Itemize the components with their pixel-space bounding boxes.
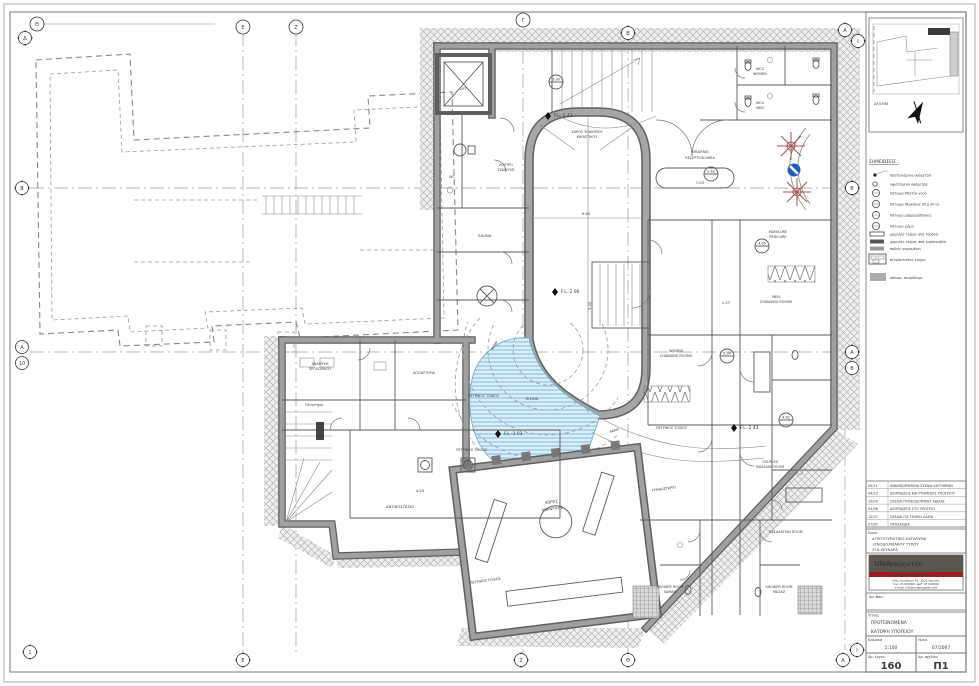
logo-ghost: UNA bbox=[874, 560, 892, 568]
logo-address: e-mail: info@unaprogetto.com bbox=[895, 586, 938, 590]
room-label: COUPLES bbox=[762, 460, 778, 464]
room-label: ΑΠΟΔΥΤΗΡΙΑ bbox=[413, 371, 436, 375]
plant-motif bbox=[777, 132, 805, 160]
date-value: 07/2007 bbox=[932, 645, 950, 651]
dimension: 7.03 bbox=[696, 180, 705, 185]
revision-desc: ΔΙΟΡΘΩΣΕΙΣ ΣΤΟ ΥΠΟΓΕΙΟ bbox=[890, 507, 935, 511]
grid-bubble: Ζ bbox=[294, 25, 298, 31]
room-label: WC bbox=[449, 175, 455, 179]
job-number: 160 bbox=[881, 661, 902, 672]
logo-brand: PROGETTO bbox=[890, 563, 923, 569]
room-label: RELAXATION ROOM bbox=[769, 530, 802, 534]
revision-desc: ΠΡΟΣΧΕΔΙΑ bbox=[890, 523, 910, 527]
drawing-number: Π1 bbox=[933, 661, 948, 672]
grid-bubble: Β bbox=[850, 366, 854, 372]
room-label: ΠΡΟΣΩΠΙΚΟΥ bbox=[309, 367, 332, 371]
legend-item: ποδιές γεμισμένες bbox=[890, 247, 921, 251]
shower-floor bbox=[798, 586, 822, 614]
room-label: RECEPTION AREA bbox=[685, 156, 715, 160]
lockers-row bbox=[768, 266, 815, 282]
room-label: WOMEN bbox=[753, 72, 767, 76]
level-label: F.L.-3.03 bbox=[504, 431, 523, 437]
drawing-sheet: ΧΩΡΟΣ ΑΝΑΨΥΧΗΣ bbox=[0, 0, 979, 686]
grid-bubble: Α bbox=[841, 658, 845, 664]
drawing-number-label: Αρ. σχεδίου bbox=[918, 655, 938, 659]
legend-title: ΣΗΜΕΙΩΣΕΙΣ : bbox=[869, 159, 899, 165]
room-label: ΚΑΘΙΣΤΙΚΟΥ bbox=[577, 135, 598, 139]
room-label: ΑΝΑΨΥΧΗ bbox=[312, 362, 329, 366]
revision-date: 04/10 bbox=[868, 492, 878, 496]
tag-value: 4.82 bbox=[782, 416, 790, 420]
drawing-title: ΚΑΤΟΨΗ ΥΠΟΓΕΙΟΥ bbox=[871, 629, 914, 635]
grid-bubble: Β bbox=[850, 186, 854, 192]
room-label: Πλυντήριο bbox=[305, 403, 323, 407]
legend-item: προτεινόμενα υψόμετρα bbox=[890, 174, 932, 178]
room-label: SAUNA bbox=[478, 233, 492, 238]
dimension: 4.23 bbox=[416, 488, 425, 493]
scale-value: 1:100 bbox=[885, 645, 898, 651]
recreation-room: ΧΩΡΟΣ ΑΝΑΨΥΧΗΣ bbox=[452, 438, 658, 636]
room-label: CHANGING ROOMS bbox=[660, 354, 692, 358]
revision-desc: ΔΙΟΡΘΩΣΕΙΣ ΚΑΙ ΡΥΘΜΙΣΕΙΣ ΥΠΟΓΕΙΟΥ bbox=[890, 492, 956, 496]
grid-bubble: Δ bbox=[23, 36, 27, 42]
room-label: ΧΩΡΟΣ ΥΠΑΙΘΡΙΟΥ bbox=[571, 130, 603, 134]
grid-bubble: Β bbox=[626, 31, 630, 37]
revision-date: 05/11 bbox=[868, 484, 878, 488]
file-label: Αρ. Φακ. bbox=[869, 595, 884, 599]
logo-tagline: ΑΡΧΙΤΕΚΤΟΝΙΚΕΣ ΜΕΛΕΤΕΣ bbox=[892, 573, 930, 577]
grid-bubble: Α bbox=[843, 28, 847, 34]
room-label: ΛΟΥΤΡΟ bbox=[499, 163, 513, 167]
dimension: 1.27 bbox=[722, 300, 731, 305]
grid-bubble: 10 bbox=[19, 361, 25, 367]
revision-date: 07/07 bbox=[868, 523, 878, 527]
project-title: ΞΕΝΟΔΟΧΕΙΑΚΟΥ ΤΥΠΟΥ bbox=[872, 542, 919, 547]
legend-item: υφιστάμενα υψόμετρα bbox=[890, 183, 928, 187]
tag-value: 4.65 bbox=[758, 242, 766, 246]
room-label: MEN bbox=[772, 295, 780, 299]
legend-item: πετρόκτιστος τοίχος bbox=[890, 258, 926, 262]
room-label: MANICURE bbox=[769, 230, 787, 234]
room-label: SHOWER ROOM bbox=[766, 585, 793, 589]
dimension: 9.80 bbox=[582, 211, 591, 216]
note-label: ΠΕΤΡΙΝΟΣ ΤΟΙΧΟΣ bbox=[656, 426, 687, 430]
grid-bubble: Β bbox=[20, 186, 24, 192]
revision-desc: ΑΝΑΘΕΩΡΗΜΕΝΑ ΣΧΕΔΙΑ ΚΑΤΟΨΕΩΝ bbox=[890, 484, 953, 488]
note-label: ΠΕΤΡΙΝΟΣ ΤΟΙΧΟΣ bbox=[456, 448, 487, 452]
grid-bubble: Θ bbox=[35, 22, 39, 28]
duct bbox=[316, 422, 324, 440]
room-label: CHANGING ROOMS bbox=[760, 300, 792, 304]
room-label: ΜΑΣΑΖ bbox=[773, 590, 786, 594]
plant-motif bbox=[783, 178, 811, 206]
room-label: ΜΠΑΡΑΚΙ bbox=[691, 149, 708, 154]
project-label: Έργο: bbox=[867, 531, 878, 535]
room-label: WCS bbox=[756, 67, 764, 71]
floor-plan-sheet: ΧΩΡΟΣ ΑΝΑΨΥΧΗΣ bbox=[0, 0, 979, 686]
grid-bubble: Ι bbox=[856, 648, 857, 654]
room-label: MASSAGE ROOM bbox=[756, 465, 784, 469]
legend-item: πάτωμα χώμα bbox=[890, 225, 915, 229]
legend-item: οπλισμ. σκυρόδεμα bbox=[890, 276, 923, 280]
grid-bubble: Θ bbox=[626, 658, 630, 664]
tag-value: 5.34 bbox=[723, 352, 731, 356]
legend-item: χαμηλός τοίχος από τούβλα bbox=[890, 233, 939, 237]
project-title: ΑΓΡΟΤΟΥΡΙΣΤΙΚΟ ΚΑΤΑΛΥΜΑ bbox=[872, 536, 927, 541]
note-label: ΠΕΤΡΙΝΟΣ ΤΟΙΧΟΣ bbox=[468, 394, 499, 398]
date-label: Ημερ. bbox=[918, 638, 928, 642]
room-label: ΧΑΜΑΜ bbox=[664, 590, 677, 594]
tag-value: 2.62 bbox=[707, 170, 715, 174]
tag-value: 3.90 bbox=[552, 78, 560, 82]
grid-bubble: 1 bbox=[28, 650, 31, 656]
keyplan-ref: ΑΛ/1938 bbox=[874, 102, 888, 106]
room-label: WCS bbox=[756, 101, 764, 105]
grid-bubble: Ε bbox=[241, 658, 244, 664]
room-label: ΤΖΑΚΟΥΖΙ bbox=[497, 168, 515, 172]
room-label: SHOWER ROOM bbox=[657, 585, 684, 589]
shower-floor bbox=[633, 586, 659, 618]
lockers-row bbox=[644, 386, 690, 402]
level-label: F.L.-2.96 bbox=[561, 289, 580, 295]
revision-date: 04/08 bbox=[868, 507, 878, 511]
grid-bubble: Ε bbox=[241, 25, 244, 31]
room-label: MEN bbox=[756, 106, 764, 110]
grid-bubble: Α bbox=[20, 345, 24, 351]
room-label: LIFT bbox=[460, 87, 468, 91]
grid-bubble: Ι bbox=[857, 39, 858, 45]
legend-item: χαμηλός τοίχος από γυψότουβλα bbox=[890, 240, 947, 244]
legend-item: πάτωμα μαρμαρόπλακες bbox=[890, 214, 932, 218]
room-label: ΠΙΣΙΝΑ bbox=[526, 396, 539, 401]
job-label: Αρ. έργου bbox=[868, 655, 885, 659]
legend-item: πάτωμα πλακάκια 30 χ 30 εκ. bbox=[890, 203, 940, 207]
scale-label: Κλίμακα bbox=[868, 638, 883, 642]
revision-date: 12/07 bbox=[868, 515, 878, 519]
level-label: F.L.-2.43 bbox=[554, 113, 573, 119]
revision-desc: ΣΧΕΔΙΑ ΓΙΑ ΤΕΛΙΚΗ ΑΔΕΙΑ bbox=[890, 515, 934, 519]
dimension: 3.20 bbox=[587, 301, 592, 310]
room-label: ΑΝΤΛΙΟΣΤΑΣΙΟ bbox=[386, 504, 414, 509]
drawing-title-label: Τίτλος bbox=[867, 614, 879, 618]
revision-desc: ΣΧΕΔΙΑ ΠΟΛΕΟΔΟΜΙΚΗΣ ΑΔΕΙΑΣ bbox=[890, 499, 945, 503]
grid-bubble: Ζ bbox=[519, 658, 523, 664]
room-label: WOMEN bbox=[669, 349, 683, 353]
revision-date: 10/09 bbox=[868, 499, 878, 503]
accessible-icon bbox=[788, 164, 801, 177]
legend-item: πάτωμα Μπετόν γερό bbox=[890, 192, 927, 196]
project-title: ΣΤΑ ΛΕΥΚΑΡΑ bbox=[872, 547, 898, 552]
grid-bubble: Α bbox=[850, 350, 854, 356]
room-label: PEDICURE bbox=[769, 235, 786, 239]
drawing-title: ΠΡΟΤΕΙΝΟΜΕΝΑ bbox=[871, 620, 907, 626]
grid-bubble: Γ bbox=[522, 18, 525, 24]
level-label: F.L.-2.43 bbox=[740, 425, 759, 431]
